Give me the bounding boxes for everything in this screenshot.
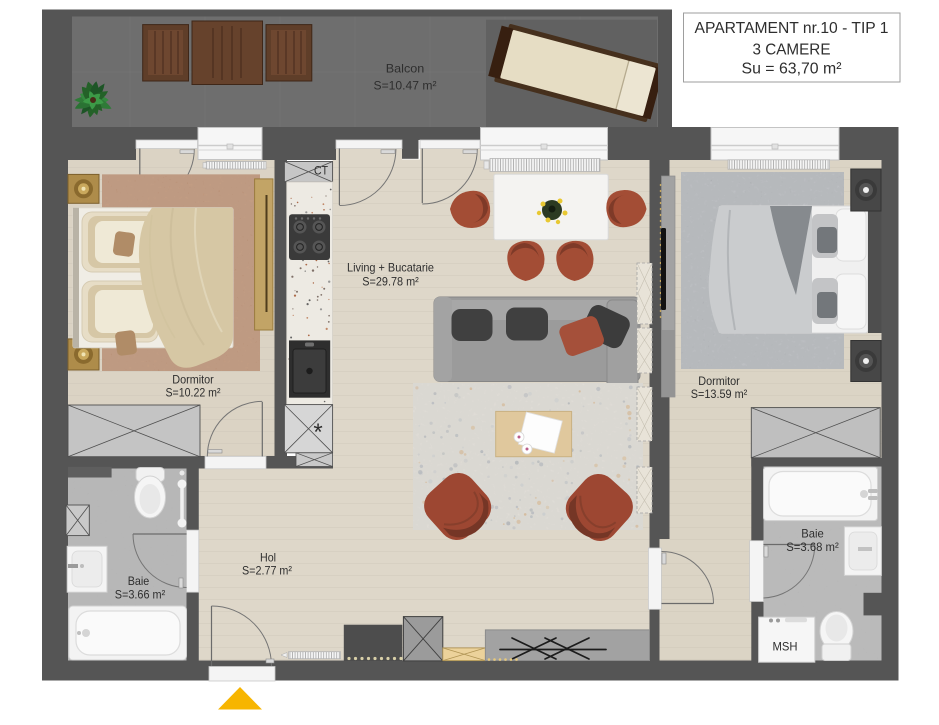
svg-text:Baie: Baie — [128, 574, 150, 588]
svg-text:S=29.78 m²: S=29.78 m² — [362, 275, 419, 289]
svg-text:*: * — [313, 419, 322, 446]
svg-text:3 CAMERE: 3 CAMERE — [753, 42, 831, 59]
svg-text:S=3.66 m²: S=3.66 m² — [115, 588, 166, 602]
svg-text:Su = 63,70 m²: Su = 63,70 m² — [742, 61, 843, 78]
svg-text:Dormitor: Dormitor — [698, 374, 740, 388]
svg-text:Living + Bucatarie: Living + Bucatarie — [347, 261, 434, 275]
svg-text:CT: CT — [314, 164, 329, 178]
svg-text:APARTAMENT nr.10 - TIP 1: APARTAMENT nr.10 - TIP 1 — [695, 20, 889, 37]
svg-text:Balcon: Balcon — [386, 62, 425, 76]
svg-text:S=3.68 m²: S=3.68 m² — [786, 540, 839, 554]
svg-text:MSH: MSH — [773, 640, 798, 654]
svg-text:S=10.47 m²: S=10.47 m² — [374, 79, 437, 93]
svg-text:Hol: Hol — [260, 551, 276, 565]
svg-text:S=13.59 m²: S=13.59 m² — [691, 387, 748, 401]
svg-text:Baie: Baie — [801, 527, 824, 541]
svg-text:Dormitor: Dormitor — [172, 373, 214, 387]
svg-text:S=10.22 m²: S=10.22 m² — [166, 386, 221, 400]
svg-text:S=2.77 m²: S=2.77 m² — [242, 564, 292, 578]
